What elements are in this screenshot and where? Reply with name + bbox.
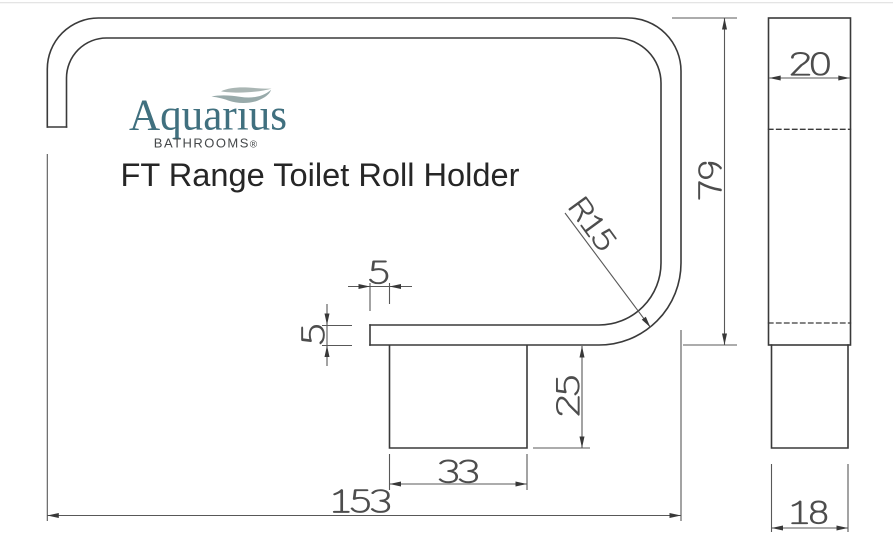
svg-text:®: ® bbox=[250, 139, 258, 150]
svg-text:FT Range Toilet Roll Holder: FT Range Toilet Roll Holder bbox=[121, 157, 520, 193]
svg-text:BATHROOMS: BATHROOMS bbox=[154, 135, 250, 150]
svg-text:Aquarıus: Aquarıus bbox=[129, 90, 287, 139]
